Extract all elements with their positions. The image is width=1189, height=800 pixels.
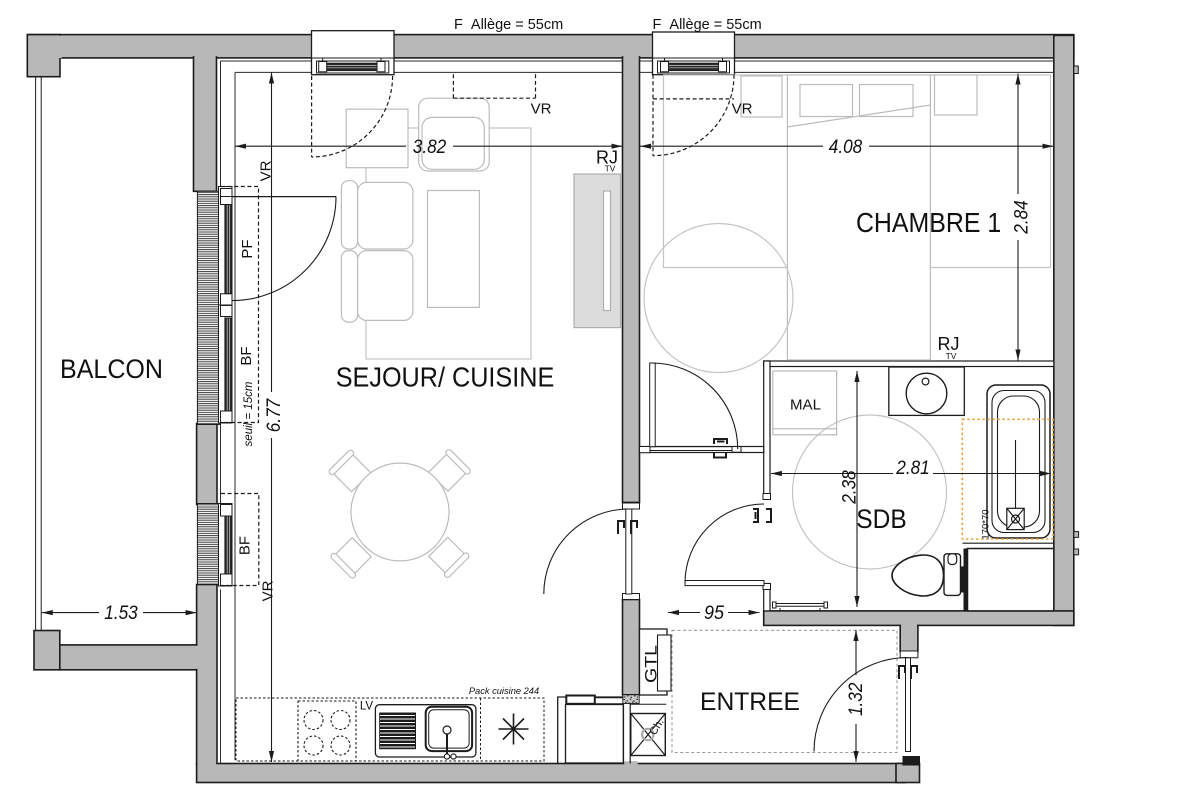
svg-text:SEJOUR/ CUISINE: SEJOUR/ CUISINE — [336, 362, 555, 393]
svg-text:TV: TV — [946, 351, 957, 361]
svg-text:3.82: 3.82 — [413, 137, 447, 158]
svg-text:95: 95 — [704, 603, 724, 624]
svg-text:2.84: 2.84 — [1012, 200, 1033, 234]
svg-text:F Allège = 55cm: F Allège = 55cm — [653, 17, 762, 33]
svg-text:2.81: 2.81 — [895, 458, 929, 479]
svg-text:LV: LV — [360, 701, 374, 713]
svg-text:VR: VR — [258, 160, 275, 181]
svg-text:ENTREE: ENTREE — [700, 688, 800, 716]
svg-text:SDB: SDB — [856, 504, 906, 534]
svg-text:170*70: 170*70 — [981, 509, 992, 539]
svg-text:GTL: GTL — [642, 645, 661, 683]
svg-text:2.38: 2.38 — [840, 470, 861, 505]
svg-text:BF: BF — [238, 346, 255, 365]
svg-text:MAL: MAL — [790, 397, 821, 414]
svg-text:6.77: 6.77 — [264, 397, 285, 432]
svg-text:PF: PF — [239, 239, 256, 258]
svg-text:TV: TV — [605, 164, 616, 174]
svg-text:4.08: 4.08 — [829, 137, 863, 158]
svg-text:VR: VR — [531, 101, 552, 118]
svg-text:BF: BF — [237, 536, 254, 555]
svg-text:VR: VR — [732, 101, 753, 118]
svg-text:seuil = 15cm: seuil = 15cm — [243, 381, 255, 446]
svg-text:1.53: 1.53 — [104, 603, 138, 624]
svg-text:1.32: 1.32 — [846, 682, 867, 716]
svg-text:BALCON: BALCON — [60, 354, 163, 384]
svg-text:F Allège = 55cm: F Allège = 55cm — [454, 17, 563, 33]
svg-text:VR: VR — [260, 580, 277, 601]
svg-text:CHAMBRE 1: CHAMBRE 1 — [856, 207, 1001, 238]
svg-text:Pack cuisine 244: Pack cuisine 244 — [469, 686, 539, 696]
